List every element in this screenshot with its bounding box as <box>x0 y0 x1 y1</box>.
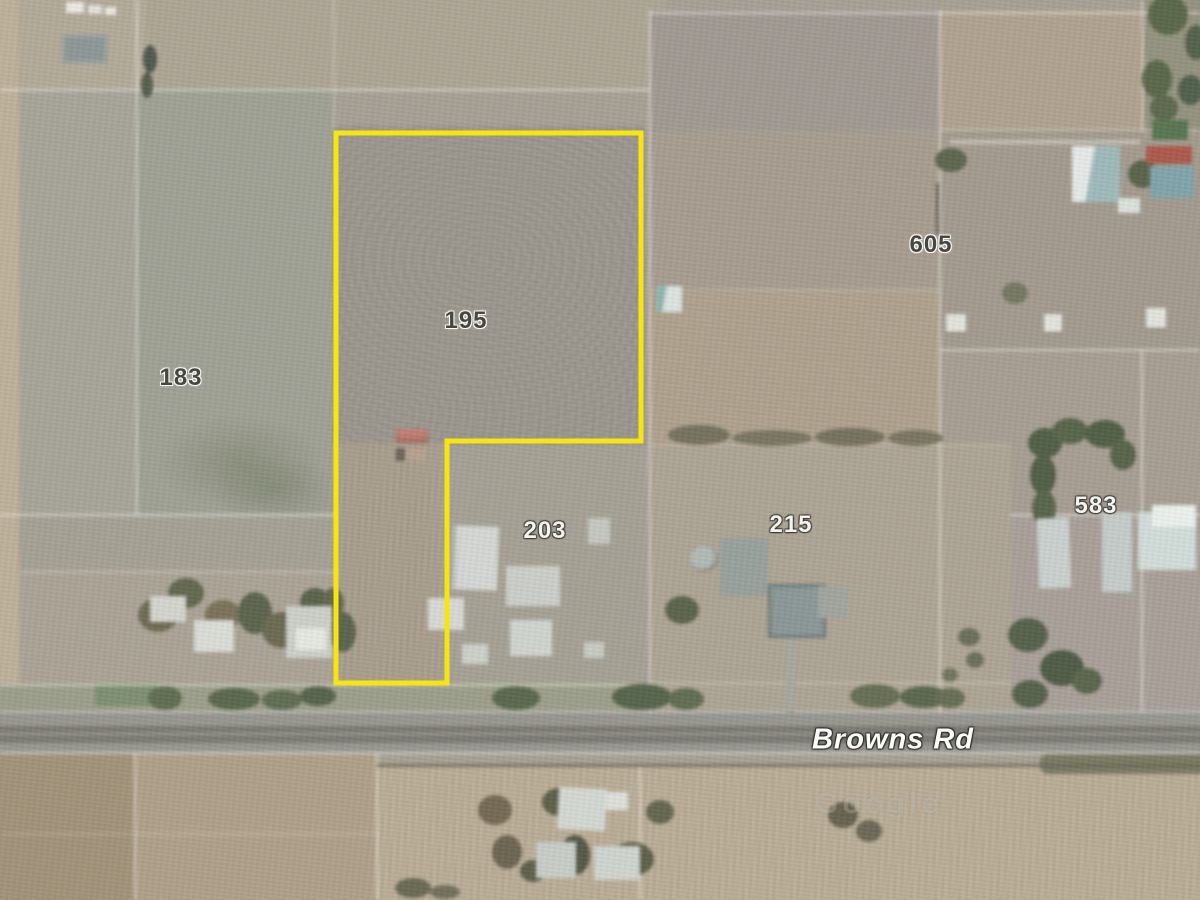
tree <box>935 688 965 708</box>
tree <box>262 690 302 710</box>
imagery-watermark: Google <box>815 787 942 821</box>
farm-building <box>506 566 560 606</box>
shrub <box>958 628 980 646</box>
field-patch <box>377 753 1200 900</box>
parcel-label-203: 203 <box>523 517 566 545</box>
field-patch <box>20 513 335 573</box>
farm-building <box>557 787 607 831</box>
tree-line <box>668 425 730 445</box>
farm-building <box>594 846 640 880</box>
parcel-grid-line <box>376 753 378 900</box>
tree <box>492 835 522 869</box>
shrub <box>966 652 984 668</box>
farm-shed <box>1072 146 1120 202</box>
tree <box>141 72 153 98</box>
parcel-grid-line <box>134 753 136 900</box>
terrain-layer <box>0 0 1200 900</box>
road-centerline <box>0 733 1200 735</box>
field-patch-195 <box>333 126 645 446</box>
tree <box>612 684 672 710</box>
parcel-label-183: 183 <box>159 364 202 392</box>
dam-pond <box>62 34 108 64</box>
road-edge-line <box>0 711 1200 713</box>
tree <box>850 684 900 708</box>
tree <box>1150 95 1178 121</box>
shrub <box>942 668 958 682</box>
parcel-grid-line <box>0 514 335 516</box>
farm-shed <box>451 525 499 591</box>
parcel-grid-line <box>940 349 1200 351</box>
parcel-grid-line <box>649 10 651 713</box>
farm-building <box>1118 198 1140 213</box>
power-pole <box>936 183 939 235</box>
field-patch <box>940 10 1145 132</box>
tree <box>1142 60 1172 98</box>
farm-shed <box>396 448 426 461</box>
farm-building <box>194 620 234 652</box>
tree-line <box>815 428 885 446</box>
farm-track <box>950 140 1140 144</box>
tree <box>1110 440 1136 470</box>
tree <box>143 45 157 73</box>
farm-building <box>66 2 84 13</box>
farm-shed <box>656 286 682 312</box>
teal-roof-building <box>1150 166 1194 198</box>
field-patch <box>650 10 942 132</box>
silo-tank <box>690 546 718 572</box>
farm-shed <box>1146 308 1166 328</box>
farm-building <box>510 620 552 656</box>
parcel-grid-line <box>650 682 1010 684</box>
green-roof-building <box>1152 120 1188 140</box>
field-patch <box>20 88 137 518</box>
parcel-label-195: 195 <box>444 307 487 335</box>
farm-building <box>88 5 102 14</box>
farm-shed <box>1102 512 1132 592</box>
tree <box>1030 455 1056 495</box>
parcel-grid-line <box>650 12 1200 14</box>
tree <box>330 612 356 652</box>
tree <box>208 688 260 710</box>
red-roof-building <box>1146 146 1192 164</box>
tree <box>646 800 674 824</box>
farm-building <box>584 642 604 658</box>
tree <box>1185 25 1200 60</box>
road-edge-line <box>0 752 1200 754</box>
parcel-grid-line <box>0 684 650 686</box>
tree-line <box>732 430 812 446</box>
tree <box>148 686 182 710</box>
tree <box>665 596 699 624</box>
parcel-label-605: 605 <box>909 231 952 259</box>
tree <box>1008 618 1048 652</box>
farm-building <box>606 792 628 810</box>
parcel-grid-line <box>136 0 138 515</box>
tree <box>668 688 704 710</box>
farm-building <box>105 7 116 15</box>
tree <box>935 148 967 172</box>
parcel-grid-line <box>333 0 335 130</box>
tree <box>1002 282 1028 304</box>
driveway <box>786 638 795 713</box>
tree <box>430 885 460 899</box>
tree <box>1012 680 1048 708</box>
farm-building <box>536 842 576 878</box>
aerial-imagery <box>0 0 1200 900</box>
tree <box>300 686 336 706</box>
aerial-map: 183195605203215583 Browns Rd Google <box>0 0 1200 900</box>
parcel-label-583: 583 <box>1074 492 1117 520</box>
farm-building <box>588 518 610 544</box>
tree <box>478 795 512 825</box>
parcel-grid-line <box>939 10 941 713</box>
farm-shed <box>1044 314 1062 332</box>
field-patch <box>650 130 942 292</box>
road-name-label: Browns Rd <box>812 724 974 757</box>
field-patch <box>650 290 942 446</box>
parcel-grid-line <box>0 833 380 835</box>
roadside-strip <box>0 0 20 726</box>
parcel-grid-line <box>650 289 940 291</box>
tree-line <box>888 430 943 446</box>
parcel-grid-line <box>20 571 335 573</box>
parcel-label-215: 215 <box>769 511 812 539</box>
tree <box>1178 75 1200 105</box>
tree <box>1072 668 1102 694</box>
field-patch-195-strip <box>333 443 447 688</box>
tree <box>492 686 540 710</box>
red-roof-shed <box>396 429 428 443</box>
field-patch <box>0 753 141 900</box>
farm-shed <box>1037 517 1071 588</box>
farm-shed <box>720 538 768 596</box>
farm-building <box>428 598 464 630</box>
farm-building <box>296 628 326 650</box>
farm-building <box>150 596 186 622</box>
field-patch <box>135 753 380 900</box>
farm-building <box>818 586 848 618</box>
tree <box>1052 418 1088 444</box>
parcel-grid-line <box>0 89 650 91</box>
farm-shed <box>946 314 966 332</box>
tree <box>395 878 431 898</box>
parcel-grid-line <box>1142 0 1144 132</box>
farm-building <box>462 644 488 664</box>
parcel-grid-line <box>19 0 20 713</box>
farm-building <box>1152 505 1196 527</box>
fence-line <box>377 764 1200 767</box>
tree <box>856 820 882 842</box>
